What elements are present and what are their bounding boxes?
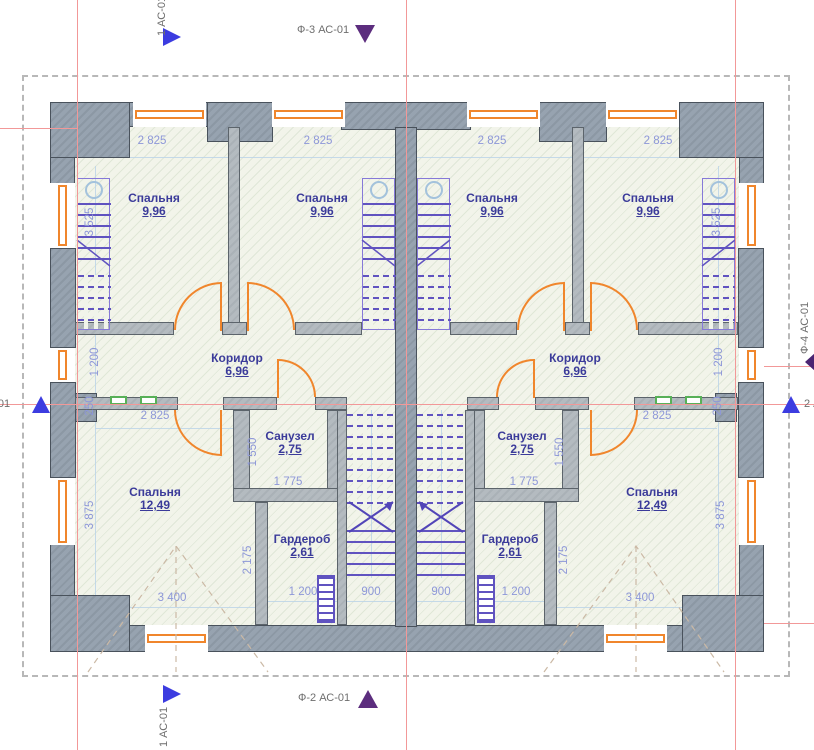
dimension-text: 3 400 — [158, 592, 187, 604]
dimension-text: 250 — [84, 396, 96, 415]
dimension-text: 2 825 — [644, 135, 673, 147]
room-label-wardrobe-left: Гардероб2,61 — [274, 533, 331, 559]
dimension-text: 1 200 — [289, 586, 318, 598]
dimension-text: 3 875 — [715, 501, 727, 530]
facade-4-arrow-icon — [805, 353, 814, 371]
facade-3-label: Ф-3 АС-01 — [297, 24, 349, 36]
dimension-text: 2 175 — [242, 546, 254, 575]
dimension-text: 3 875 — [84, 501, 96, 530]
labels-layer: Спальня9,96Спальня9,96Спальня9,96Спальня… — [0, 0, 814, 750]
dimension-text: 3 400 — [626, 592, 655, 604]
room-label-bathroom-left: Санузел2,75 — [265, 430, 314, 456]
dimension-text: 1 775 — [274, 476, 303, 488]
room-label-bedroom-5: Спальня12,49 — [129, 486, 181, 512]
dimension-text: 3 525 — [711, 208, 723, 237]
dimension-text: 2 825 — [304, 135, 333, 147]
dimension-text: 900 — [431, 586, 450, 598]
dimension-text: 1 200 — [713, 348, 725, 377]
section-label-top: 1 АС-01 — [156, 0, 168, 36]
room-label-bedroom-4: Спальня9,96 — [622, 192, 674, 218]
section-label-right: 2 АС-01 — [804, 398, 814, 410]
dimension-text: 2 825 — [643, 410, 672, 422]
room-label-bathroom-right: Санузел2,75 — [497, 430, 546, 456]
facade-2-label: Ф-2 АС-01 — [298, 692, 350, 704]
room-label-wardrobe-right: Гардероб2,61 — [482, 533, 539, 559]
section-label-bottom: 1 АС-01 — [158, 701, 170, 747]
dimension-text: 250 — [712, 396, 724, 415]
room-label-corridor-right: Коридор6,96 — [549, 352, 601, 378]
dimension-text: 2 825 — [478, 135, 507, 147]
facade-4-label: Ф-4 АС-01 — [799, 292, 811, 354]
dimension-text: 900 — [361, 586, 380, 598]
dimension-text: 1 775 — [510, 476, 539, 488]
room-label-bedroom-2: Спальня9,96 — [296, 192, 348, 218]
section-arrow-icon — [782, 396, 800, 413]
section-arrow-icon — [32, 396, 50, 413]
room-label-corridor-left: Коридор6,96 — [211, 352, 263, 378]
facade-2-arrow-icon — [358, 690, 378, 708]
section-label-left: 2 АС-01 — [0, 398, 10, 410]
dimension-text: 1 550 — [554, 438, 566, 467]
dimension-text: 3 525 — [84, 208, 96, 237]
room-label-bedroom-1: Спальня9,96 — [128, 192, 180, 218]
dimension-text: 2 175 — [558, 546, 570, 575]
dimension-text: 1 200 — [502, 586, 531, 598]
facade-3-arrow-icon — [355, 25, 375, 43]
dimension-text: 1 200 — [89, 348, 101, 377]
room-label-bedroom-6: Спальня12,49 — [626, 486, 678, 512]
floor-plan-drawing: Спальня9,96Спальня9,96Спальня9,96Спальня… — [0, 0, 814, 750]
dimension-text: 2 825 — [138, 135, 167, 147]
room-label-bedroom-3: Спальня9,96 — [466, 192, 518, 218]
dimension-text: 1 550 — [247, 438, 259, 467]
dimension-text: 2 825 — [141, 410, 170, 422]
